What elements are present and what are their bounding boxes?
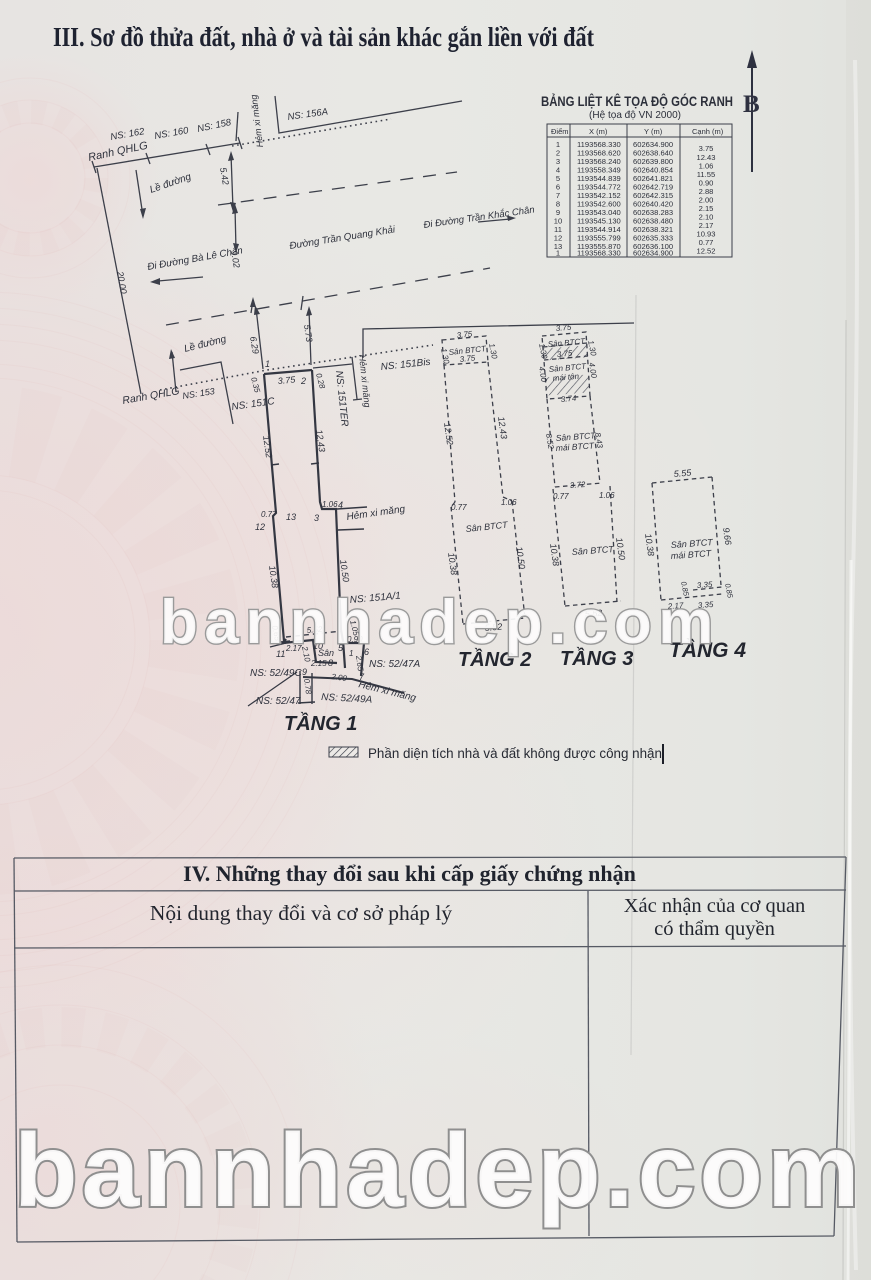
svg-text:bannhadep.com: bannhadep.com xyxy=(14,1113,863,1229)
